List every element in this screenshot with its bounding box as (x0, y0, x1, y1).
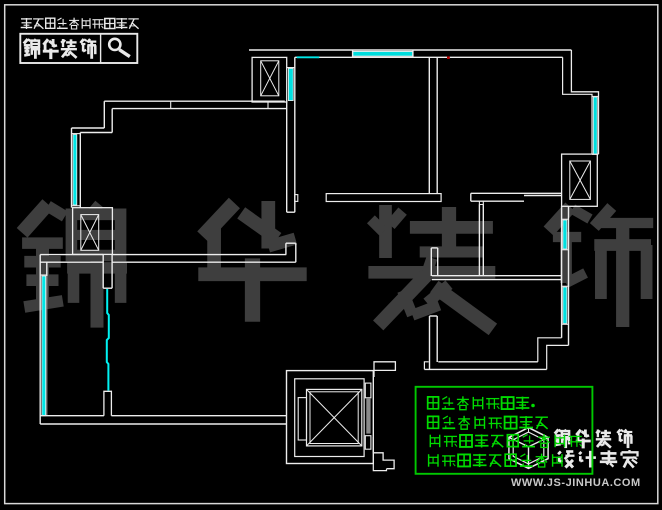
svg-text:WWW.JS-JINHUA.COM: WWW.JS-JINHUA.COM (511, 477, 641, 489)
